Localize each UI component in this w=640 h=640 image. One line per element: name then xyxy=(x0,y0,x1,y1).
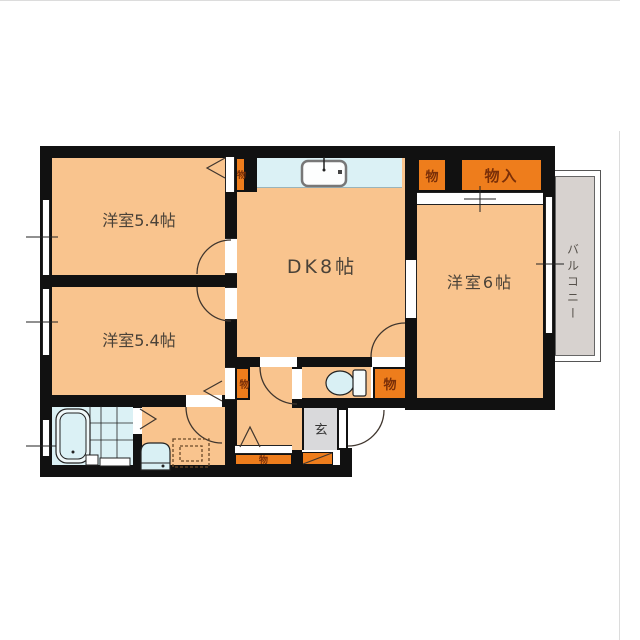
door-arc-washroom xyxy=(186,407,222,443)
triangle-bath-door xyxy=(140,409,156,429)
door-arc-front-door xyxy=(348,410,384,446)
bathtub xyxy=(56,409,90,463)
bathroom-tiles xyxy=(90,406,133,458)
triangle-closet-top xyxy=(207,158,225,178)
triangle-closet-mid xyxy=(204,381,222,401)
washbasin xyxy=(141,443,170,470)
dining-kitchen-label: DK8帖 xyxy=(252,252,392,278)
room-right-label: 洋室6帖 xyxy=(424,270,536,292)
room-top-left-label: 洋室5.4帖 xyxy=(60,208,218,230)
floor-plan: 物 物 物入 物 物 物 xyxy=(0,0,640,640)
balcony-label: バルコニー xyxy=(562,218,584,348)
shoe-cabinet-diagonal xyxy=(303,453,332,464)
triangle-closet-bottom xyxy=(240,427,260,447)
bathroom-step xyxy=(86,455,130,466)
kitchen-sink xyxy=(302,157,346,186)
door-arc-dk-closet xyxy=(371,323,405,357)
entrance-label: 玄 xyxy=(302,419,340,437)
door-arc-room-bottom-left xyxy=(197,287,231,321)
toilet xyxy=(326,370,366,396)
washing-machine-pan xyxy=(173,439,209,467)
fixtures-overlay xyxy=(0,0,640,640)
door-arc-room-top-left xyxy=(197,240,231,274)
door-arc-dk-hall xyxy=(260,367,297,404)
room-bottom-left-label: 洋室5.4帖 xyxy=(60,328,218,350)
